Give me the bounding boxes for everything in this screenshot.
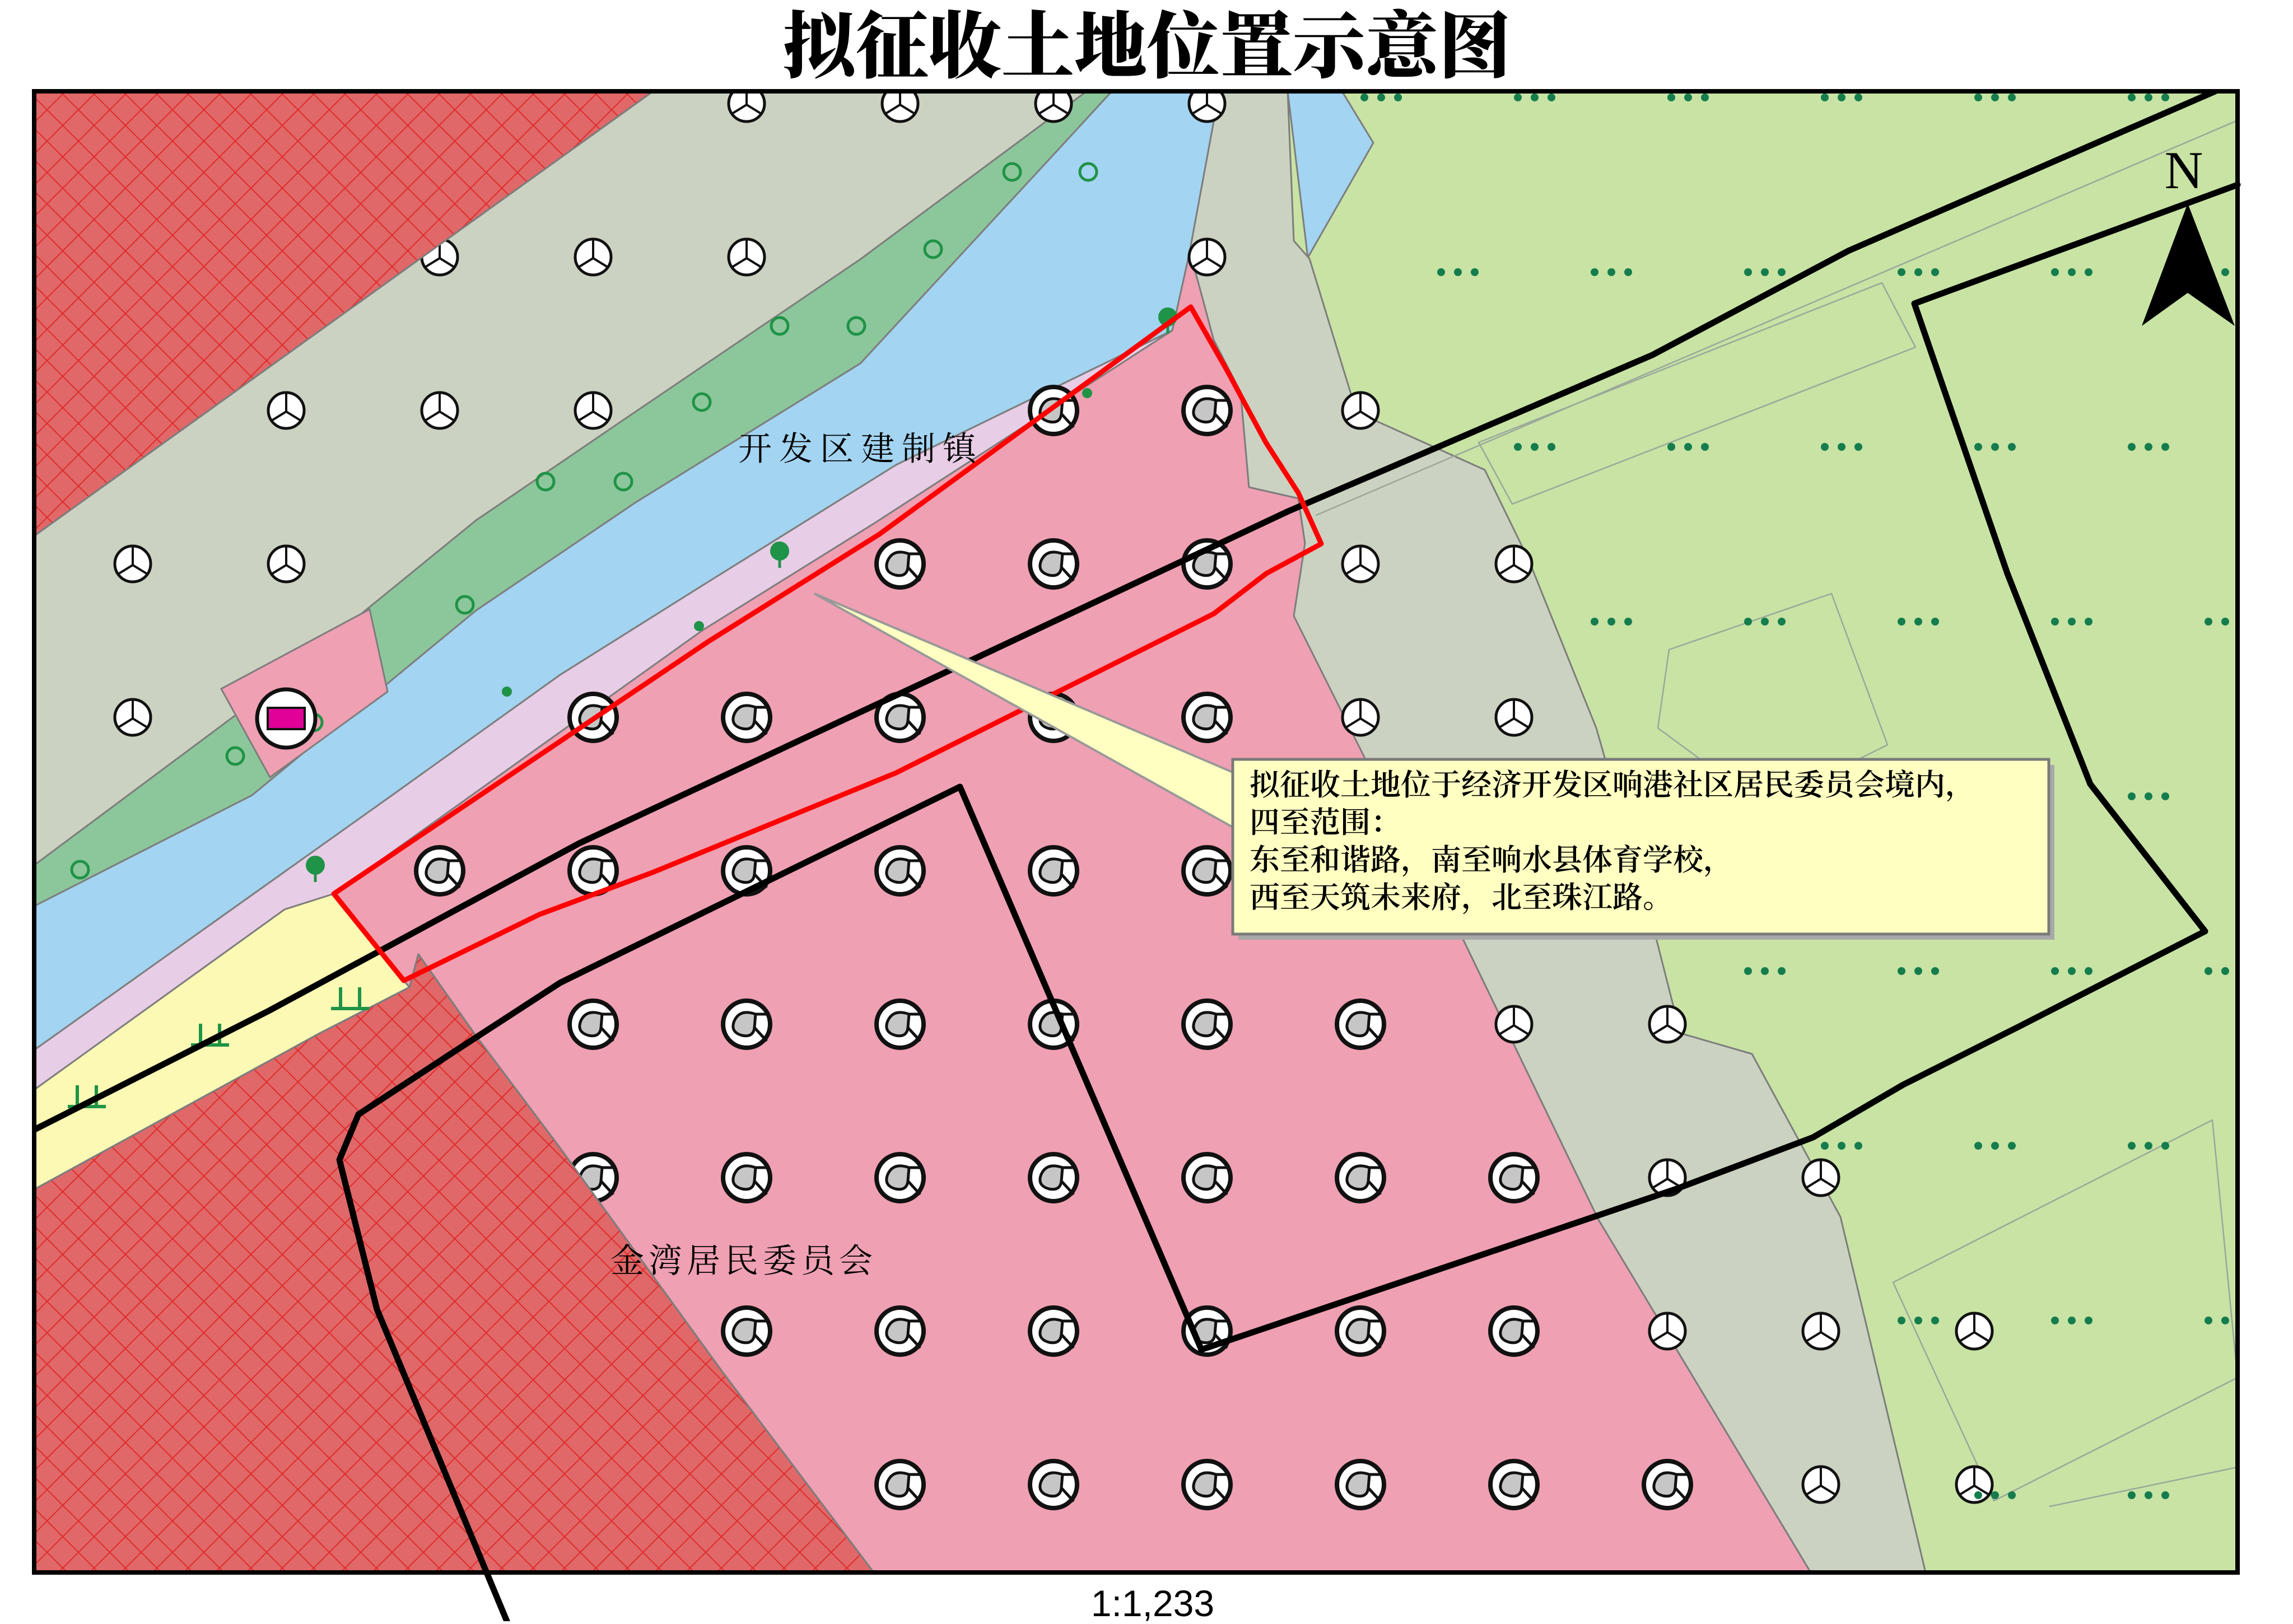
svg-text:N: N xyxy=(2165,141,2203,200)
svg-text:1:1,233: 1:1,233 xyxy=(1091,1583,1214,1621)
